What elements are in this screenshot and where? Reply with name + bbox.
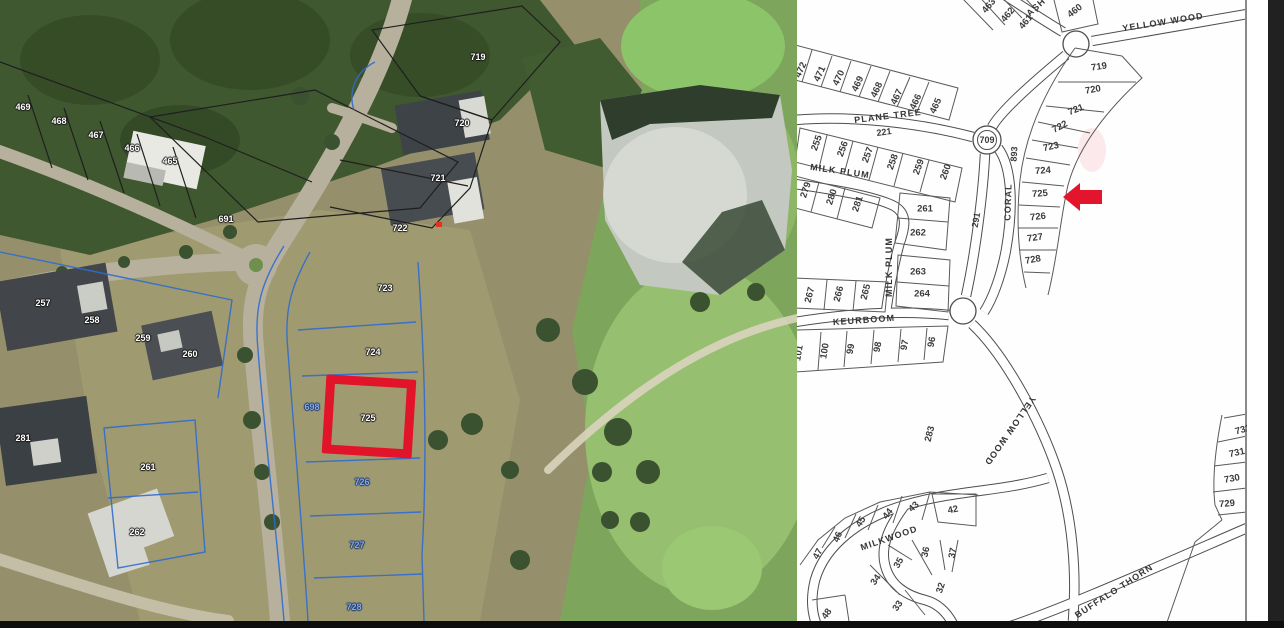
plot-label: 37 xyxy=(947,547,960,559)
plot-label: 724 xyxy=(1035,165,1052,177)
plan-scene xyxy=(797,0,1247,621)
plot-label: 260 xyxy=(182,349,197,359)
plot-label: 722 xyxy=(392,223,407,233)
plot-label: 719 xyxy=(1090,60,1107,73)
plot-label: 264 xyxy=(914,289,930,300)
plan-map-panel: YELLOW WOOD ASH PLANE TREE MILK PLUM MIL… xyxy=(797,0,1247,621)
listing-map-figure: 469 468 467 466 465 691 719 720 721 722 … xyxy=(0,0,1284,628)
plot-label-blue: 698 xyxy=(304,402,319,412)
plot-label: 720 xyxy=(454,118,469,128)
screen-edge-bottom xyxy=(0,621,1284,628)
road-number-label: 221 xyxy=(876,126,892,138)
plot-label: 727 xyxy=(1026,231,1043,244)
plot-label: 258 xyxy=(84,315,99,325)
plot-label: 262 xyxy=(910,228,926,239)
road-number-label: 709 xyxy=(979,135,994,145)
roundabout-top xyxy=(1063,31,1089,57)
plot-label: 729 xyxy=(1219,498,1236,510)
road-number-label: 893 xyxy=(1008,146,1019,162)
street-label: CORAL xyxy=(1002,183,1013,221)
plot-label: 261 xyxy=(917,204,933,215)
plot-label: 281 xyxy=(15,433,30,443)
plot-label: 723 xyxy=(377,283,392,293)
plot-label: 721 xyxy=(430,173,445,183)
plot-label: 36 xyxy=(919,546,932,559)
street-label: MILK PLUM xyxy=(884,237,894,297)
plot-label: 719 xyxy=(470,52,485,62)
plot-label: 42 xyxy=(947,504,960,517)
plot-label-blue: 726 xyxy=(354,477,369,487)
satellite-map-panel: 469 468 467 466 465 691 719 720 721 722 … xyxy=(0,0,797,621)
plot-label: 97 xyxy=(899,339,912,351)
plot-label: 257 xyxy=(35,298,50,308)
plot-label: 261 xyxy=(140,462,155,472)
plot-label: 724 xyxy=(365,347,380,357)
screen-edge-right xyxy=(1268,0,1284,628)
plot-label: 98 xyxy=(872,341,885,353)
plot-label: 263 xyxy=(910,267,926,278)
plot-label-blue: 728 xyxy=(346,602,361,612)
plot-label: 468 xyxy=(51,116,66,126)
plot-label: 99 xyxy=(845,343,858,355)
plot-label-arrow-target: 725 xyxy=(1032,188,1049,200)
plot-label-blue: 727 xyxy=(349,540,364,550)
plot-label: 691 xyxy=(218,214,233,224)
plot-label: 466 xyxy=(124,143,139,153)
plot-label: 259 xyxy=(135,333,150,343)
plot-label: 469 xyxy=(15,102,30,112)
plot-label: 467 xyxy=(88,130,103,140)
roundabout-bottom xyxy=(950,298,976,324)
plot-label: 465 xyxy=(162,156,177,166)
plot-label: 726 xyxy=(1030,211,1047,224)
plot-label: 96 xyxy=(926,336,939,348)
satellite-scene xyxy=(0,0,797,621)
highlight-box xyxy=(322,374,417,458)
survey-mark xyxy=(436,222,442,227)
plot-label: 262 xyxy=(129,527,144,537)
